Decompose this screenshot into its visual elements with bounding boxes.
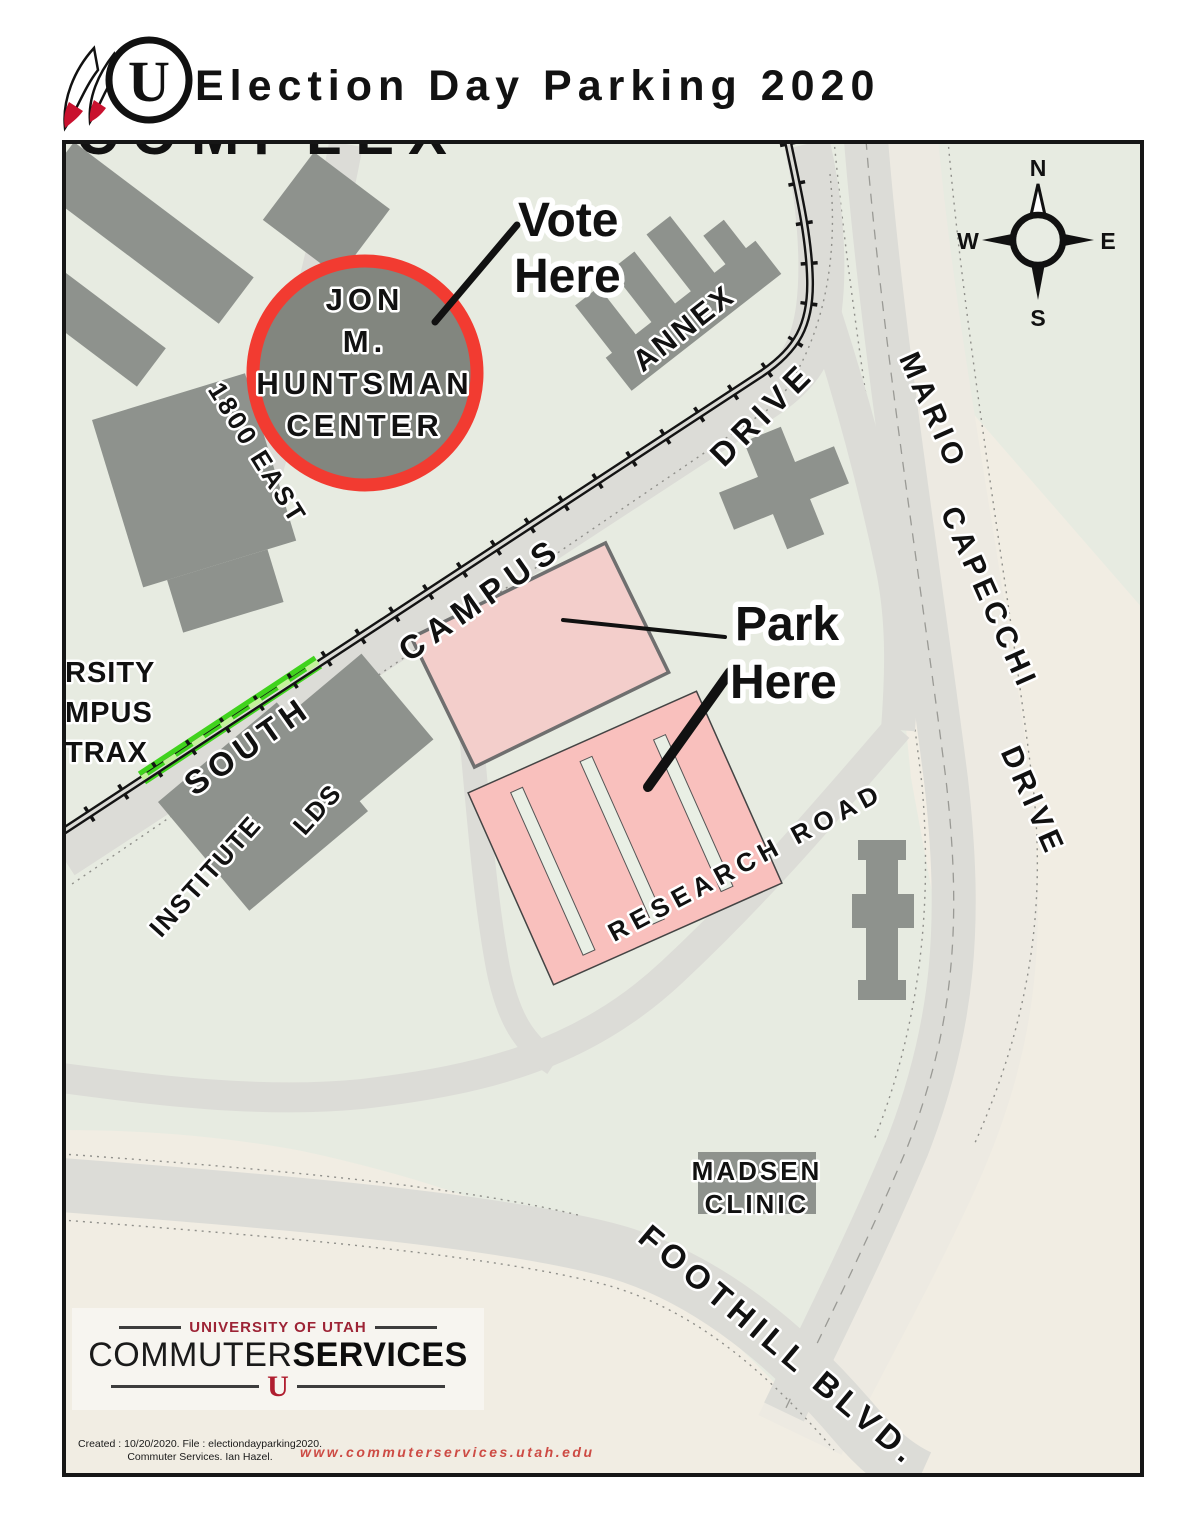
trax-label-line2: MPUS	[65, 697, 153, 729]
park-here-label-line2: Here	[730, 656, 837, 709]
vote-here-label-line2: Here	[514, 250, 621, 303]
page-title: Election Day Parking 2020	[195, 62, 880, 111]
divider-line	[297, 1385, 445, 1388]
campus-map: JON M. HUNTSMAN CENTER Vote Here Park He…	[62, 140, 1144, 1477]
compass-east-label: E	[1100, 228, 1115, 254]
madsen-clinic-label-line1: MADSEN	[692, 1156, 823, 1186]
university-of-utah-logo: U	[52, 28, 202, 136]
logo-bottom-row: U	[111, 1374, 445, 1400]
logo-top-row: UNIVERSITY OF UTAH	[119, 1319, 436, 1336]
compass-north-label: N	[1030, 155, 1047, 181]
huntsman-label-line1: JON	[326, 282, 405, 317]
madsen-clinic-label-line2: CLINIC	[705, 1189, 810, 1219]
divider-line	[111, 1385, 259, 1388]
huntsman-label-line3: HUNTSMAN	[256, 366, 473, 401]
huntsman-label-line4: CENTER	[286, 408, 443, 443]
trax-label-line3: TRAX	[65, 737, 148, 769]
huntsman-label-line2: M.	[343, 324, 387, 359]
compass-west-label: W	[957, 228, 979, 254]
park-here-label-line1: Park	[735, 598, 839, 651]
university-of-utah-text: UNIVERSITY OF UTAH	[189, 1319, 366, 1336]
logo-main-row: COMMUTERSERVICES	[88, 1338, 468, 1372]
block-u-icon: U	[267, 1374, 289, 1400]
compass-south-label: S	[1030, 305, 1045, 331]
services-text: SERVICES	[292, 1336, 467, 1374]
complex-partial-label: COMPLEX	[76, 140, 461, 167]
website-link[interactable]: www.commuterservices.utah.edu	[300, 1444, 595, 1460]
campus-map-svg: JON M. HUNTSMAN CENTER Vote Here Park He…	[62, 140, 1144, 1477]
divider-line	[119, 1326, 181, 1329]
commuter-services-logo: UNIVERSITY OF UTAH COMMUTERSERVICES U	[72, 1308, 484, 1410]
trax-label-line1: RSITY	[65, 657, 155, 689]
created-line1: Created : 10/20/2020. File : electionday…	[74, 1438, 326, 1451]
created-line2: Commuter Services. Ian Hazel.	[74, 1451, 326, 1464]
created-note: Created : 10/20/2020. File : electionday…	[74, 1438, 326, 1464]
divider-line	[375, 1326, 437, 1329]
commuter-text: COMMUTER	[88, 1336, 292, 1374]
vote-here-label-line1: Vote	[518, 194, 618, 247]
logo-u-letter: U	[128, 49, 170, 114]
election-parking-flyer: U Election Day Parking 2020	[0, 0, 1187, 1536]
